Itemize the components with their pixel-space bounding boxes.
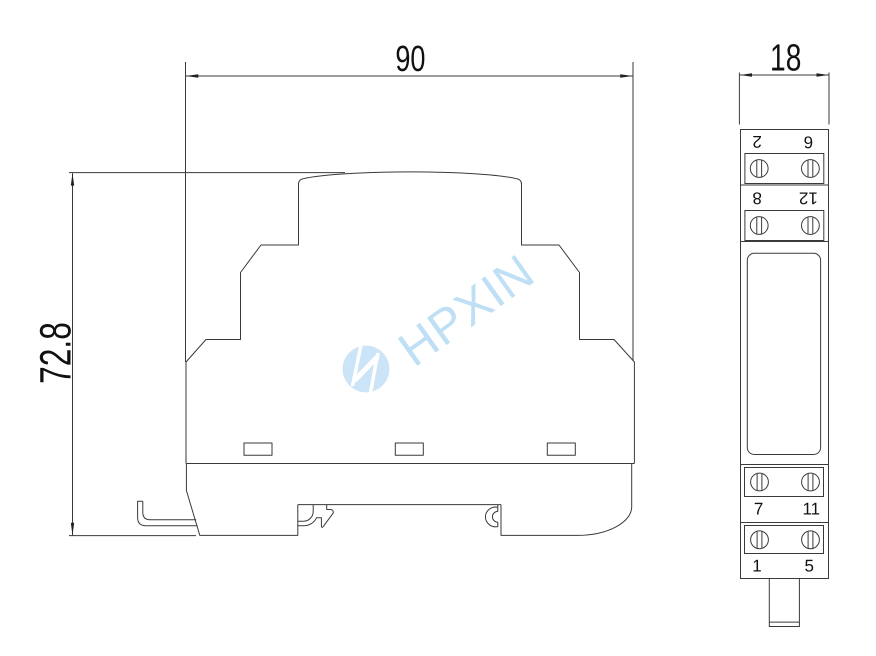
svg-text:12: 12 [799,189,818,208]
svg-text:72.8: 72.8 [32,322,81,384]
svg-text:6: 6 [804,132,813,151]
svg-text:8: 8 [752,189,761,208]
svg-text:1: 1 [752,557,761,576]
svg-text:11: 11 [802,500,820,519]
svg-text:18: 18 [770,38,801,80]
svg-text:2: 2 [752,132,761,151]
svg-text:5: 5 [804,557,813,576]
svg-text:7: 7 [754,500,763,519]
svg-text:90: 90 [395,38,425,79]
